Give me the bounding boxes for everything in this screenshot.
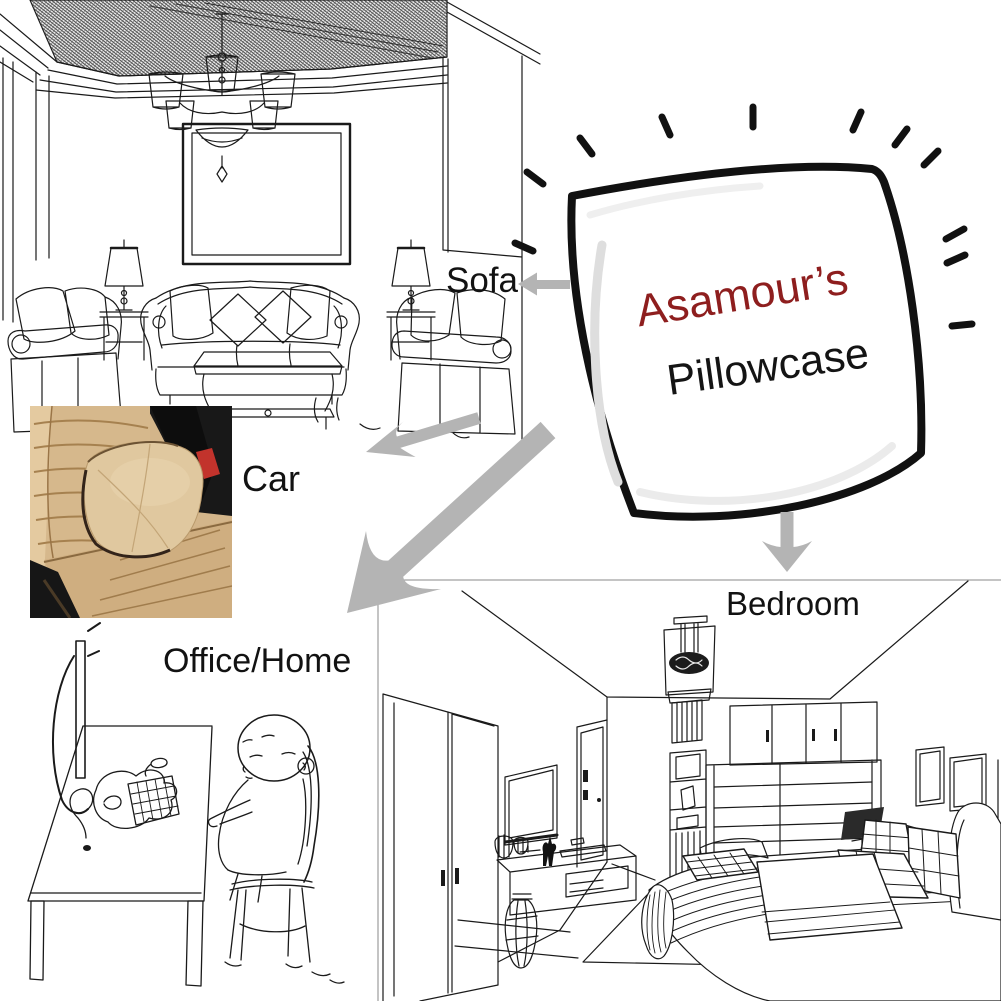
armchair-right bbox=[392, 290, 515, 434]
sofa-label: Sofa bbox=[446, 263, 518, 298]
sparkle-dashes bbox=[88, 623, 100, 656]
desk bbox=[28, 726, 212, 986]
bed bbox=[642, 803, 1001, 1001]
bedroom-scene bbox=[378, 580, 1001, 1001]
arrow-to-car bbox=[366, 412, 481, 457]
cat-figurine bbox=[543, 836, 557, 866]
decorative-vases bbox=[495, 835, 538, 968]
arrow-to-bedroom bbox=[762, 512, 812, 572]
wardrobe bbox=[383, 694, 498, 1001]
wall-picture-frame bbox=[183, 124, 350, 264]
bedroom-label: Bedroom bbox=[726, 587, 860, 620]
woven-ceiling bbox=[30, 0, 447, 98]
draped-blanket-corner bbox=[642, 885, 674, 959]
bedroom-door bbox=[577, 720, 607, 867]
sofa-three-seat bbox=[141, 281, 360, 404]
car-photo bbox=[30, 406, 232, 618]
monitor bbox=[76, 641, 85, 778]
person-at-desk bbox=[208, 715, 314, 902]
right-wall-lines bbox=[443, 2, 540, 440]
wall-frames bbox=[916, 747, 986, 811]
car-label: Car bbox=[242, 461, 300, 497]
ceiling-speaker-unit bbox=[664, 616, 715, 743]
table-lamp-left bbox=[100, 240, 148, 360]
wall-tv bbox=[505, 765, 557, 852]
overhead-cabinets bbox=[730, 702, 877, 765]
table-lamp-right bbox=[387, 240, 435, 360]
mouse bbox=[145, 758, 167, 776]
product-infographic: Sofa Car Office/Home Bedroom Asamour’s P… bbox=[0, 0, 1001, 1001]
office-home-label: Office/Home bbox=[163, 644, 351, 678]
left-wall-lines bbox=[0, 14, 57, 322]
illustration-canvas bbox=[0, 0, 1001, 1001]
cable-swoosh bbox=[53, 656, 93, 851]
arrow-to-sofa bbox=[518, 273, 570, 296]
living-room-scene bbox=[0, 0, 540, 440]
chair bbox=[225, 746, 344, 983]
